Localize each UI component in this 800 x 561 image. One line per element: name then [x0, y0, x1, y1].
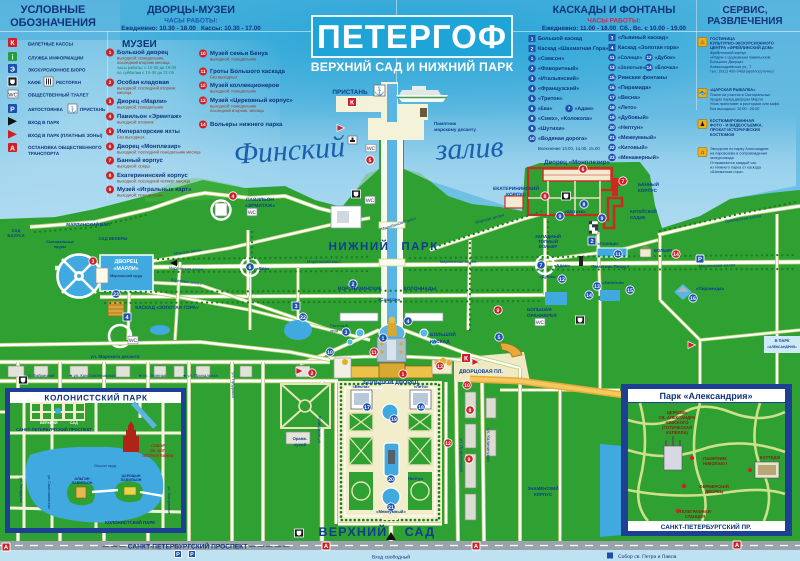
svg-text:«Весна»: «Весна» [618, 95, 640, 101]
svg-text:БИЛЕТНЫЕ КАССЫ: БИЛЕТНЫЕ КАССЫ [28, 41, 73, 46]
svg-text:ПЕТРА И ПАВЛА: ПЕТРА И ПАВЛА [143, 454, 174, 458]
svg-text:«Самсон»: «Самсон» [378, 297, 401, 302]
svg-text:3: 3 [294, 304, 297, 310]
svg-text:ВЕРХНИЙ: ВЕРХНИЙ [319, 524, 388, 539]
svg-text:ДВОРЕЦ: ДВОРЕЦ [115, 259, 138, 265]
svg-text:7: 7 [568, 106, 571, 111]
svg-text:выходной: среда: выходной: среда [117, 163, 150, 168]
svg-text:23: 23 [609, 155, 615, 160]
svg-text:«Французский»: «Французский» [538, 85, 579, 92]
svg-text:ВЕРХНИЙ: ВЕРХНИЙ [40, 420, 58, 425]
svg-text:ОСТАНОВКА ОБЩЕСТВЕННОГО: ОСТАНОВКА ОБЩЕСТВЕННОГО [28, 145, 102, 150]
svg-text:17: 17 [609, 95, 615, 100]
svg-text:Разводная ул.: Разводная ул. [317, 416, 322, 445]
svg-text:9: 9 [559, 214, 562, 220]
svg-text:12: 12 [646, 55, 652, 60]
svg-text:Каскад «Шахматная Гора»: Каскад «Шахматная Гора» [538, 46, 608, 52]
svg-text:1: 1 [531, 56, 534, 61]
svg-text:«Самсон»: «Самсон» [538, 56, 564, 62]
svg-text:МУЗЕИ: МУЗЕИ [122, 39, 157, 50]
svg-text:Александрийская ул., 7: Александрийская ул., 7 [710, 65, 751, 69]
svg-text:⌂: ⌂ [701, 150, 705, 156]
svg-text:9: 9 [497, 308, 500, 314]
svg-text:КАСКАДЫ И ФОНТАНЫ: КАСКАДЫ И ФОНТАНЫ [553, 4, 676, 16]
svg-text:БАННЫЙ: БАННЫЙ [638, 181, 659, 187]
svg-text:WC: WC [536, 320, 545, 326]
svg-text:◄ ул. Зеленая: ◄ ул. Зеленая [138, 373, 166, 378]
svg-text:ЭКСКУРСИОННОЕ БЮРО: ЭКСКУРСИОННОЕ БЮРО [28, 67, 86, 72]
svg-text:11: 11 [615, 252, 621, 258]
svg-text:А: А [735, 542, 740, 549]
svg-text:«Адам»: «Адам» [575, 106, 594, 112]
svg-text:КОРПУС: КОРПУС [534, 492, 553, 497]
svg-text:3: 3 [611, 35, 614, 41]
svg-text:БОЛЬШАЯ: БОЛЬШАЯ [527, 307, 552, 312]
svg-text:СЕРВИС,: СЕРВИС, [723, 5, 768, 16]
svg-text:Ежедневно: 10.30 - 18.00 Кас: Ежедневно: 10.30 - 18.00 Кассы: 10.30 - … [121, 25, 261, 32]
svg-text:21: 21 [609, 135, 615, 140]
svg-text:«Пирамида»: «Пирамида» [696, 286, 725, 291]
svg-text:3: 3 [345, 330, 348, 336]
svg-text:8: 8 [583, 202, 586, 208]
svg-text:14: 14 [673, 252, 679, 258]
svg-text:ул. Фабричная: ул. Фабричная [26, 373, 54, 378]
svg-text:14: 14 [586, 293, 592, 299]
svg-text:14: 14 [646, 65, 652, 70]
svg-text:выходной: понедельник: выходной: понедельник [210, 56, 256, 61]
svg-text:«Пирамида»: «Пирамида» [618, 85, 651, 91]
svg-text:КАСКАД «ЗОЛОТАЯ ГОРА»: КАСКАД «ЗОЛОТАЯ ГОРА» [135, 305, 199, 311]
svg-text:выходной: понедельник: выходной: понедельник [117, 104, 163, 109]
svg-text:3: 3 [531, 76, 534, 81]
svg-text:Дворец «Монплезир»: Дворец «Монплезир» [544, 159, 610, 166]
svg-text:залив: залив [434, 130, 504, 167]
svg-text:Р: Р [190, 552, 194, 558]
svg-text:К: К [464, 355, 468, 362]
svg-text:«Итальянский»: «Итальянский» [538, 75, 579, 82]
svg-text:22: 22 [300, 315, 306, 321]
svg-text:Ежедневно: 11.00 - 18.00 Сб.,: Ежедневно: 11.00 - 18.00 Сб., Вс. с 10.0… [542, 25, 687, 32]
svg-text:морскому десанту: морскому десанту [434, 127, 476, 132]
svg-text:«Шутихи»: «Шутихи» [564, 209, 586, 214]
svg-text:11: 11 [610, 55, 615, 60]
svg-text:Экскурсия по парку Александрия: Экскурсия по парку Александрия [710, 147, 768, 151]
svg-text:4: 4 [232, 194, 235, 200]
svg-text:ЧАСЫ РАБОТЫ:: ЧАСЫ РАБОТЫ: [587, 18, 640, 25]
svg-text:9: 9 [109, 187, 112, 193]
svg-text:«Лето»: «Лето» [618, 105, 637, 111]
svg-text:Каскад «Золотая гора»: Каскад «Золотая гора» [618, 45, 679, 51]
svg-text:13: 13 [594, 284, 600, 290]
svg-text:Отправляется каждый час: Отправляется каждый час [710, 161, 756, 165]
svg-text:«Дубок»: «Дубок» [539, 274, 557, 279]
svg-text:WC: WC [366, 198, 375, 204]
svg-text:«Солнце»: «Солнце» [597, 241, 619, 246]
svg-text:7: 7 [109, 158, 112, 164]
svg-text:«Нептун»: «Нептун» [618, 125, 643, 131]
svg-text:6: 6 [531, 106, 534, 111]
svg-text:«Львиный каскад»: «Львиный каскад» [618, 34, 668, 41]
svg-text:ПАВИЛЬОН: ПАВИЛЬОН [121, 478, 142, 482]
svg-text:2: 2 [311, 371, 314, 377]
svg-text:20: 20 [609, 125, 615, 130]
svg-text:К: К [350, 99, 354, 106]
svg-text:8: 8 [531, 116, 534, 121]
svg-text:Секторальные: Секторальные [46, 240, 74, 244]
svg-text:Э: Э [10, 67, 15, 74]
svg-text:КОЛОНИСТСКИЙ ПАРК: КОЛОНИСТСКИЙ ПАРК [44, 393, 148, 403]
svg-text:ул. Самсониевская: ул. Самсониевская [47, 475, 51, 509]
svg-text:7: 7 [540, 263, 543, 269]
svg-text:ДВОРЦОВАЯ ПЛ.: ДВОРЦОВАЯ ПЛ. [459, 369, 503, 375]
svg-text:КОСТЮМОВ: КОСТЮМОВ [710, 132, 734, 137]
svg-text:КОЛОННАДЫ: КОЛОННАДЫ [404, 286, 437, 292]
svg-text:19: 19 [391, 417, 397, 423]
svg-text:Марлинский пруд: Марлинский пруд [110, 274, 142, 278]
svg-text:11: 11 [371, 350, 377, 356]
svg-text:ПАРК: ПАРК [401, 241, 438, 253]
svg-text:КОРПУС: КОРПУС [638, 188, 658, 193]
svg-text:7: 7 [622, 179, 625, 185]
svg-text:«ЦАРСКАЯ РЫБАЛКА»: «ЦАРСКАЯ РЫБАЛКА» [710, 87, 756, 92]
svg-text:САД: САД [70, 421, 78, 425]
svg-text:«Золотые»: «Золотые» [602, 280, 625, 285]
svg-text:ПРИСТАНЬ: ПРИСТАНЬ [80, 107, 106, 112]
svg-text:18: 18 [418, 405, 424, 411]
svg-text:«Адам»: «Адам» [554, 263, 571, 268]
svg-text:ул. Правленская: ул. Правленская [459, 438, 464, 472]
svg-text:ТРАНСПОРТА: ТРАНСПОРТА [28, 151, 60, 156]
svg-text:◄ ул. Причальная: ◄ ул. Причальная [182, 373, 218, 378]
svg-text:23: 23 [113, 292, 119, 298]
svg-text:2: 2 [531, 46, 534, 52]
svg-text:ОБЩЕСТВЕННЫЙ ТУАЛЕТ: ОБЩЕСТВЕННЫЙ ТУАЛЕТ [28, 91, 89, 97]
svg-text:ДВОРЦЫ-МУЗЕИ: ДВОРЦЫ-МУЗЕИ [147, 4, 235, 16]
svg-text:9: 9 [531, 126, 534, 131]
svg-text:выходной: понедельник: выходной: понедельник [210, 88, 256, 93]
svg-text:14: 14 [200, 122, 206, 128]
svg-text:5: 5 [498, 335, 501, 341]
svg-text:САНКТ-ПЕТЕРБУРГСКИЙ ПР.: САНКТ-ПЕТЕРБУРГСКИЙ ПР. [661, 523, 752, 531]
svg-text:«Лето»: «Лето» [414, 384, 429, 389]
svg-text:4: 4 [407, 319, 410, 325]
svg-text:КАСКАД: КАСКАД [430, 339, 450, 345]
svg-text:КОРПУС: КОРПУС [506, 192, 526, 198]
svg-text:экскурсовода.: экскурсовода. [710, 156, 735, 160]
svg-text:КИТАЙСКИЙ: КИТАЙСКИЙ [630, 209, 657, 214]
svg-text:В ПАРК: В ПАРК [775, 338, 790, 343]
svg-text:ЕКАТЕРИНИНСКИЙ: ЕКАТЕРИНИНСКИЙ [493, 185, 539, 192]
svg-text:А: А [324, 543, 329, 550]
svg-text:«Дубовый»: «Дубовый» [618, 114, 649, 121]
svg-text:WC: WC [8, 93, 17, 99]
svg-text:2: 2 [109, 80, 112, 86]
svg-text:БОЛЬШОЙ: БОЛЬШОЙ [430, 331, 456, 338]
svg-text:прудах перед дворцом Марли.: прудах перед дворцом Марли. [710, 98, 764, 102]
svg-text:«Межеумный»: «Межеумный» [618, 134, 656, 141]
svg-text:ВЕРХНИЙ САД И НИЖНИЙ ПАРК: ВЕРХНИЙ САД И НИЖНИЙ ПАРК [311, 59, 514, 74]
svg-text:9: 9 [468, 457, 471, 463]
svg-text:сухой: сухой [294, 442, 306, 447]
svg-text:КАФЕ: КАФЕ [28, 80, 41, 85]
svg-text:ВХОД В ПАРК (ПЛАТНЫЕ ЗОНЫ): ВХОД В ПАРК (ПЛАТНЫЕ ЗОНЫ) [28, 133, 103, 138]
svg-text:Памятник Петру I: Памятник Петру I [591, 264, 629, 269]
svg-text:12: 12 [559, 277, 565, 283]
svg-text:«Тритон»: «Тритон» [538, 96, 563, 102]
svg-text:1: 1 [531, 36, 534, 42]
svg-text:БОЛЬШОЙ ДВОРЕЦ: БОЛЬШОЙ ДВОРЕЦ [363, 378, 419, 386]
svg-text:«АЛЕКСАНДРИЯ»: «АЛЕКСАНДРИЯ» [767, 345, 797, 349]
svg-text:i: i [11, 53, 13, 62]
svg-text:СВ. АПП.: СВ. АПП. [150, 449, 167, 453]
svg-text:ЗНАМЕНСКИЙ: ЗНАМЕНСКИЙ [527, 486, 558, 491]
svg-text:Песочный: Песочный [330, 324, 348, 328]
svg-text:16: 16 [609, 85, 615, 90]
svg-text:11: 11 [200, 69, 205, 75]
svg-text:пруд: пруд [330, 329, 339, 333]
svg-text:⚓: ⚓ [374, 86, 385, 96]
svg-text:13: 13 [437, 364, 443, 370]
svg-text:🐟: 🐟 [699, 90, 707, 97]
svg-text:«Шахматная гора».: «Шахматная гора». [710, 170, 744, 174]
svg-text:— — — САНКТ-ПЕТЕРБУРГСКИЙ ПР: — — — САНКТ-ПЕТЕРБУРГСКИЙ ПРОСПЕКТ — — —… [102, 543, 289, 551]
svg-text:◄ ул. Константиновская: ◄ ул. Константиновская [68, 373, 115, 378]
svg-text:«Водяная дорога»: «Водяная дорога» [538, 136, 587, 142]
svg-text:1: 1 [382, 336, 385, 342]
svg-text:«Ева»: «Ева» [538, 106, 553, 112]
svg-text:выходной: последний четверг ме: выходной: последний четверг месяца [117, 178, 191, 183]
svg-text:Римские фонтаны: Римские фонтаны [618, 75, 667, 81]
svg-text:1: 1 [109, 50, 112, 56]
svg-text:УСЛОВНЫЕ: УСЛОВНЫЕ [21, 4, 86, 16]
svg-text:5: 5 [109, 129, 112, 135]
svg-text:Р: Р [176, 552, 180, 558]
svg-text:«МАРЛИ»: «МАРЛИ» [113, 266, 138, 272]
svg-text:НИКОЛАЮ I: НИКОЛАЮ I [703, 461, 727, 466]
svg-text:К: К [10, 40, 15, 47]
svg-text:«Ёлочка»: «Ёлочка» [655, 64, 679, 71]
svg-text:по субботам с 10-30 до 21-00: по субботам с 10-30 до 21-00 [117, 70, 175, 75]
svg-text:Включение 13.00, 14.00, 15.00: Включение 13.00, 14.00, 15.00 [538, 146, 600, 151]
svg-text:выходной: понедельник: выходной: понедельник [117, 192, 163, 197]
svg-text:ОРАНЖЕРЕЯ: ОРАНЖЕРЕЯ [527, 313, 557, 318]
svg-text:15: 15 [609, 75, 615, 80]
svg-text:9: 9 [601, 216, 604, 222]
svg-text:ОБОЗНАЧЕНИЯ: ОБОЗНАЧЕНИЯ [10, 17, 96, 29]
svg-text:10: 10 [529, 136, 535, 141]
svg-text:САДИК: САДИК [630, 215, 646, 220]
svg-text:«Менажерный»: «Менажерный» [618, 154, 659, 161]
svg-text:АВТОСТОЯНКА: АВТОСТОЯНКА [28, 107, 64, 112]
svg-text:12: 12 [445, 441, 451, 447]
svg-text:1: 1 [402, 372, 405, 378]
svg-text:«Фаворитный»: «Фаворитный» [538, 65, 579, 72]
svg-text:Вольеры нижнего парка: Вольеры нижнего парка [210, 121, 283, 128]
svg-text:6: 6 [249, 265, 252, 271]
svg-text:ПАВИЛЬОН: ПАВИЛЬОН [72, 481, 93, 485]
svg-text:Марлинская аллея: Марлинская аллея [440, 259, 477, 264]
svg-text:КАПЕЛЛА): КАПЕЛЛА) [666, 430, 688, 435]
svg-text:Большой каскад: Большой каскад [538, 35, 583, 42]
svg-text:17: 17 [364, 405, 370, 411]
svg-text:WC: WC [367, 146, 376, 152]
svg-text:«Ева»: «Ева» [257, 266, 270, 271]
svg-text:«Межеумный»: «Межеумный» [376, 509, 406, 514]
svg-text:РЕСТОРАН: РЕСТОРАН [56, 80, 82, 85]
svg-text:БАХУСА: БАХУСА [7, 233, 24, 238]
svg-text:♟: ♟ [700, 121, 705, 128]
svg-text:Вход свободный: Вход свободный [372, 555, 410, 561]
svg-text:20: 20 [388, 477, 394, 483]
svg-text:3: 3 [109, 99, 112, 105]
svg-text:КОТТЕДЖ: КОТТЕДЖ [760, 455, 781, 460]
svg-text:ВОРОНИХИНСКИЕ: ВОРОНИХИНСКИЕ [338, 286, 383, 292]
svg-text:Улов приготовят в ресторане ил: Улов приготовят в ресторане или кафе. [710, 102, 780, 106]
svg-text:Парк «Александрия»: Парк «Александрия» [659, 391, 752, 401]
svg-text:3: 3 [92, 259, 95, 265]
svg-text:Без выходных: Без выходных [210, 74, 238, 79]
svg-text:ПРИСТАНЬ: ПРИСТАНЬ [332, 89, 368, 96]
svg-text:4: 4 [611, 45, 614, 51]
svg-text:ПЕТЕРГОФ: ПЕТЕРГОФ [317, 18, 507, 55]
svg-text:Оранж.: Оранж. [293, 436, 308, 441]
svg-text:Собор св. Петра и Павла: Собор св. Петра и Павла [618, 554, 677, 560]
svg-text:4: 4 [109, 114, 112, 120]
svg-text:на паровозике в сопровождении: на паровозике в сопровождении [710, 152, 767, 156]
svg-text:«Рядом с Церковным павильоном: «Рядом с Церковным павильоном [710, 56, 771, 60]
svg-text:ДВОРЕЦ: ДВОРЕЦ [705, 489, 724, 494]
svg-text:♨: ♨ [700, 39, 705, 46]
svg-text:4: 4 [531, 86, 534, 91]
svg-text:10: 10 [464, 383, 470, 389]
svg-text:Марлинский мост: Марлинский мост [307, 259, 341, 264]
svg-text:ул. Калининская: ул. Калининская [486, 428, 491, 462]
svg-text:САД ВЕНЕРЫ: САД ВЕНЕРЫ [99, 236, 128, 241]
svg-text:РАЗВЛЕЧЕНИЯ: РАЗВЛЕЧЕНИЯ [707, 16, 782, 27]
svg-text:ВОЛЬЕР: ВОЛЬЕР [539, 244, 558, 249]
svg-text:ЧАСЫ РАБОТЫ:: ЧАСЫ РАБОТЫ: [164, 18, 217, 25]
svg-text:выходной: последний понедельни: выходной: последний понедельник месяца [117, 149, 201, 154]
svg-text:А: А [10, 146, 15, 153]
svg-text:15: 15 [627, 288, 633, 294]
svg-text:Ловля на участке в Секторальны: Ловля на участке в Секторальных [710, 93, 770, 97]
svg-text:Фрейлинский корпус: Фрейлинский корпус [710, 51, 746, 55]
svg-text:«Весна»: «Весна» [352, 384, 370, 389]
svg-text:WC: WC [248, 210, 257, 216]
svg-text:СТАНЦИЯ: СТАНЦИЯ [685, 514, 705, 519]
svg-text:пруды: пруды [54, 245, 66, 249]
svg-text:КОЛОНИСТСКИЙ ПАРК: КОЛОНИСТСКИЙ ПАРК [105, 520, 155, 525]
svg-text:ул. Бородачева: ул. Бородачева [167, 486, 171, 514]
svg-text:18: 18 [609, 105, 615, 110]
svg-text:2: 2 [590, 239, 593, 245]
svg-text:6: 6 [582, 167, 585, 173]
svg-text:Памятник: Памятник [434, 121, 457, 126]
svg-text:13: 13 [609, 65, 615, 70]
svg-text:САД: САД [405, 525, 436, 539]
svg-text:8: 8 [544, 194, 547, 200]
svg-text:«Китовый»: «Китовый» [618, 144, 648, 151]
svg-text:СОБОР: СОБОР [151, 444, 165, 448]
svg-text:«Солнце»: «Солнце» [618, 55, 643, 61]
svg-text:22: 22 [609, 145, 615, 150]
svg-text:последний вторник, месяца: последний вторник, месяца [210, 108, 264, 113]
svg-text:13: 13 [200, 98, 206, 104]
svg-text:ул. Лихардова: ул. Лихардова [19, 477, 23, 503]
svg-text:8: 8 [109, 173, 112, 179]
svg-text:«Золотые»: «Золотые» [618, 65, 646, 71]
svg-text:Без выходных: 10.00 - 20.00: Без выходных: 10.00 - 20.00 [710, 107, 759, 111]
svg-text:⚓: ⚓ [68, 105, 77, 114]
svg-text:5: 5 [369, 158, 372, 164]
svg-text:«Шутихи»: «Шутихи» [538, 126, 565, 132]
svg-text:А: А [4, 544, 9, 551]
svg-text:САНКТ-ПЕТЕРБУРГСКИЙ ПРОСПЕКТ: САНКТ-ПЕТЕРБУРГСКИЙ ПРОСПЕКТ [16, 427, 92, 432]
svg-text:месяца: месяца [117, 90, 132, 95]
svg-text:Р: Р [698, 256, 702, 263]
svg-text:«ЭРМИТАЖ»: «ЭРМИТАЖ» [245, 203, 275, 209]
svg-text:А: А [474, 543, 479, 550]
svg-text:«Дубок»: «Дубок» [655, 55, 676, 61]
svg-text:МАРЛИНСКИЙ ВАЛ: МАРЛИНСКИЙ ВАЛ [66, 221, 109, 227]
svg-text:6: 6 [109, 144, 112, 150]
svg-text:Большого Дворца»: Большого Дворца» [710, 60, 744, 64]
svg-text:ВОЛЬЕР: ВОЛЬЕР [654, 248, 673, 253]
svg-text:Без выходных.: Без выходных. [117, 134, 146, 139]
svg-text:5: 5 [531, 96, 534, 101]
svg-text:Р: Р [10, 107, 15, 114]
svg-text:12: 12 [200, 83, 206, 89]
svg-text:ВХОД В ПАРК: ВХОД В ПАРК [28, 120, 59, 125]
svg-text:2: 2 [531, 66, 534, 71]
svg-text:10: 10 [200, 51, 206, 57]
svg-text:16: 16 [690, 296, 696, 302]
svg-text:ул. Морского десанта: ул. Морского десанта [90, 354, 140, 359]
svg-text:СЛУЖБА ИНФОРМАЦИИ: СЛУЖБА ИНФОРМАЦИИ [28, 55, 83, 60]
svg-text:НИЖНИЙ: НИЖНИЙ [329, 239, 390, 253]
svg-text:WC: WC [129, 338, 138, 344]
svg-text:19: 19 [609, 115, 615, 120]
svg-text:выходной: вторник: выходной: вторник [117, 119, 154, 124]
svg-text:Ольгин пруд: Ольгин пруд [94, 464, 117, 468]
svg-text:Нептун: Нептун [408, 476, 423, 481]
svg-text:ЦЕНТРА «ФРЕЙЛИНСКИЙ ДОМ»: ЦЕНТРА «ФРЕЙЛИНСКИЙ ДОМ» [710, 45, 774, 50]
svg-text:тел.: (812) 450-5403 (круглосу: тел.: (812) 450-5403 (круглосуточно) [710, 69, 774, 73]
svg-text:ПАВИЛЬОН: ПАВИЛЬОН [246, 197, 274, 203]
svg-text:ул. Прудовая: ул. Прудовая [231, 372, 236, 398]
svg-text:10: 10 [327, 350, 333, 356]
svg-text:из Нижнего парка от каскада: из Нижнего парка от каскада [710, 165, 762, 169]
svg-text:8: 8 [469, 408, 472, 414]
svg-text:«Смех», «Колокола»: «Смех», «Колокола» [538, 116, 592, 122]
